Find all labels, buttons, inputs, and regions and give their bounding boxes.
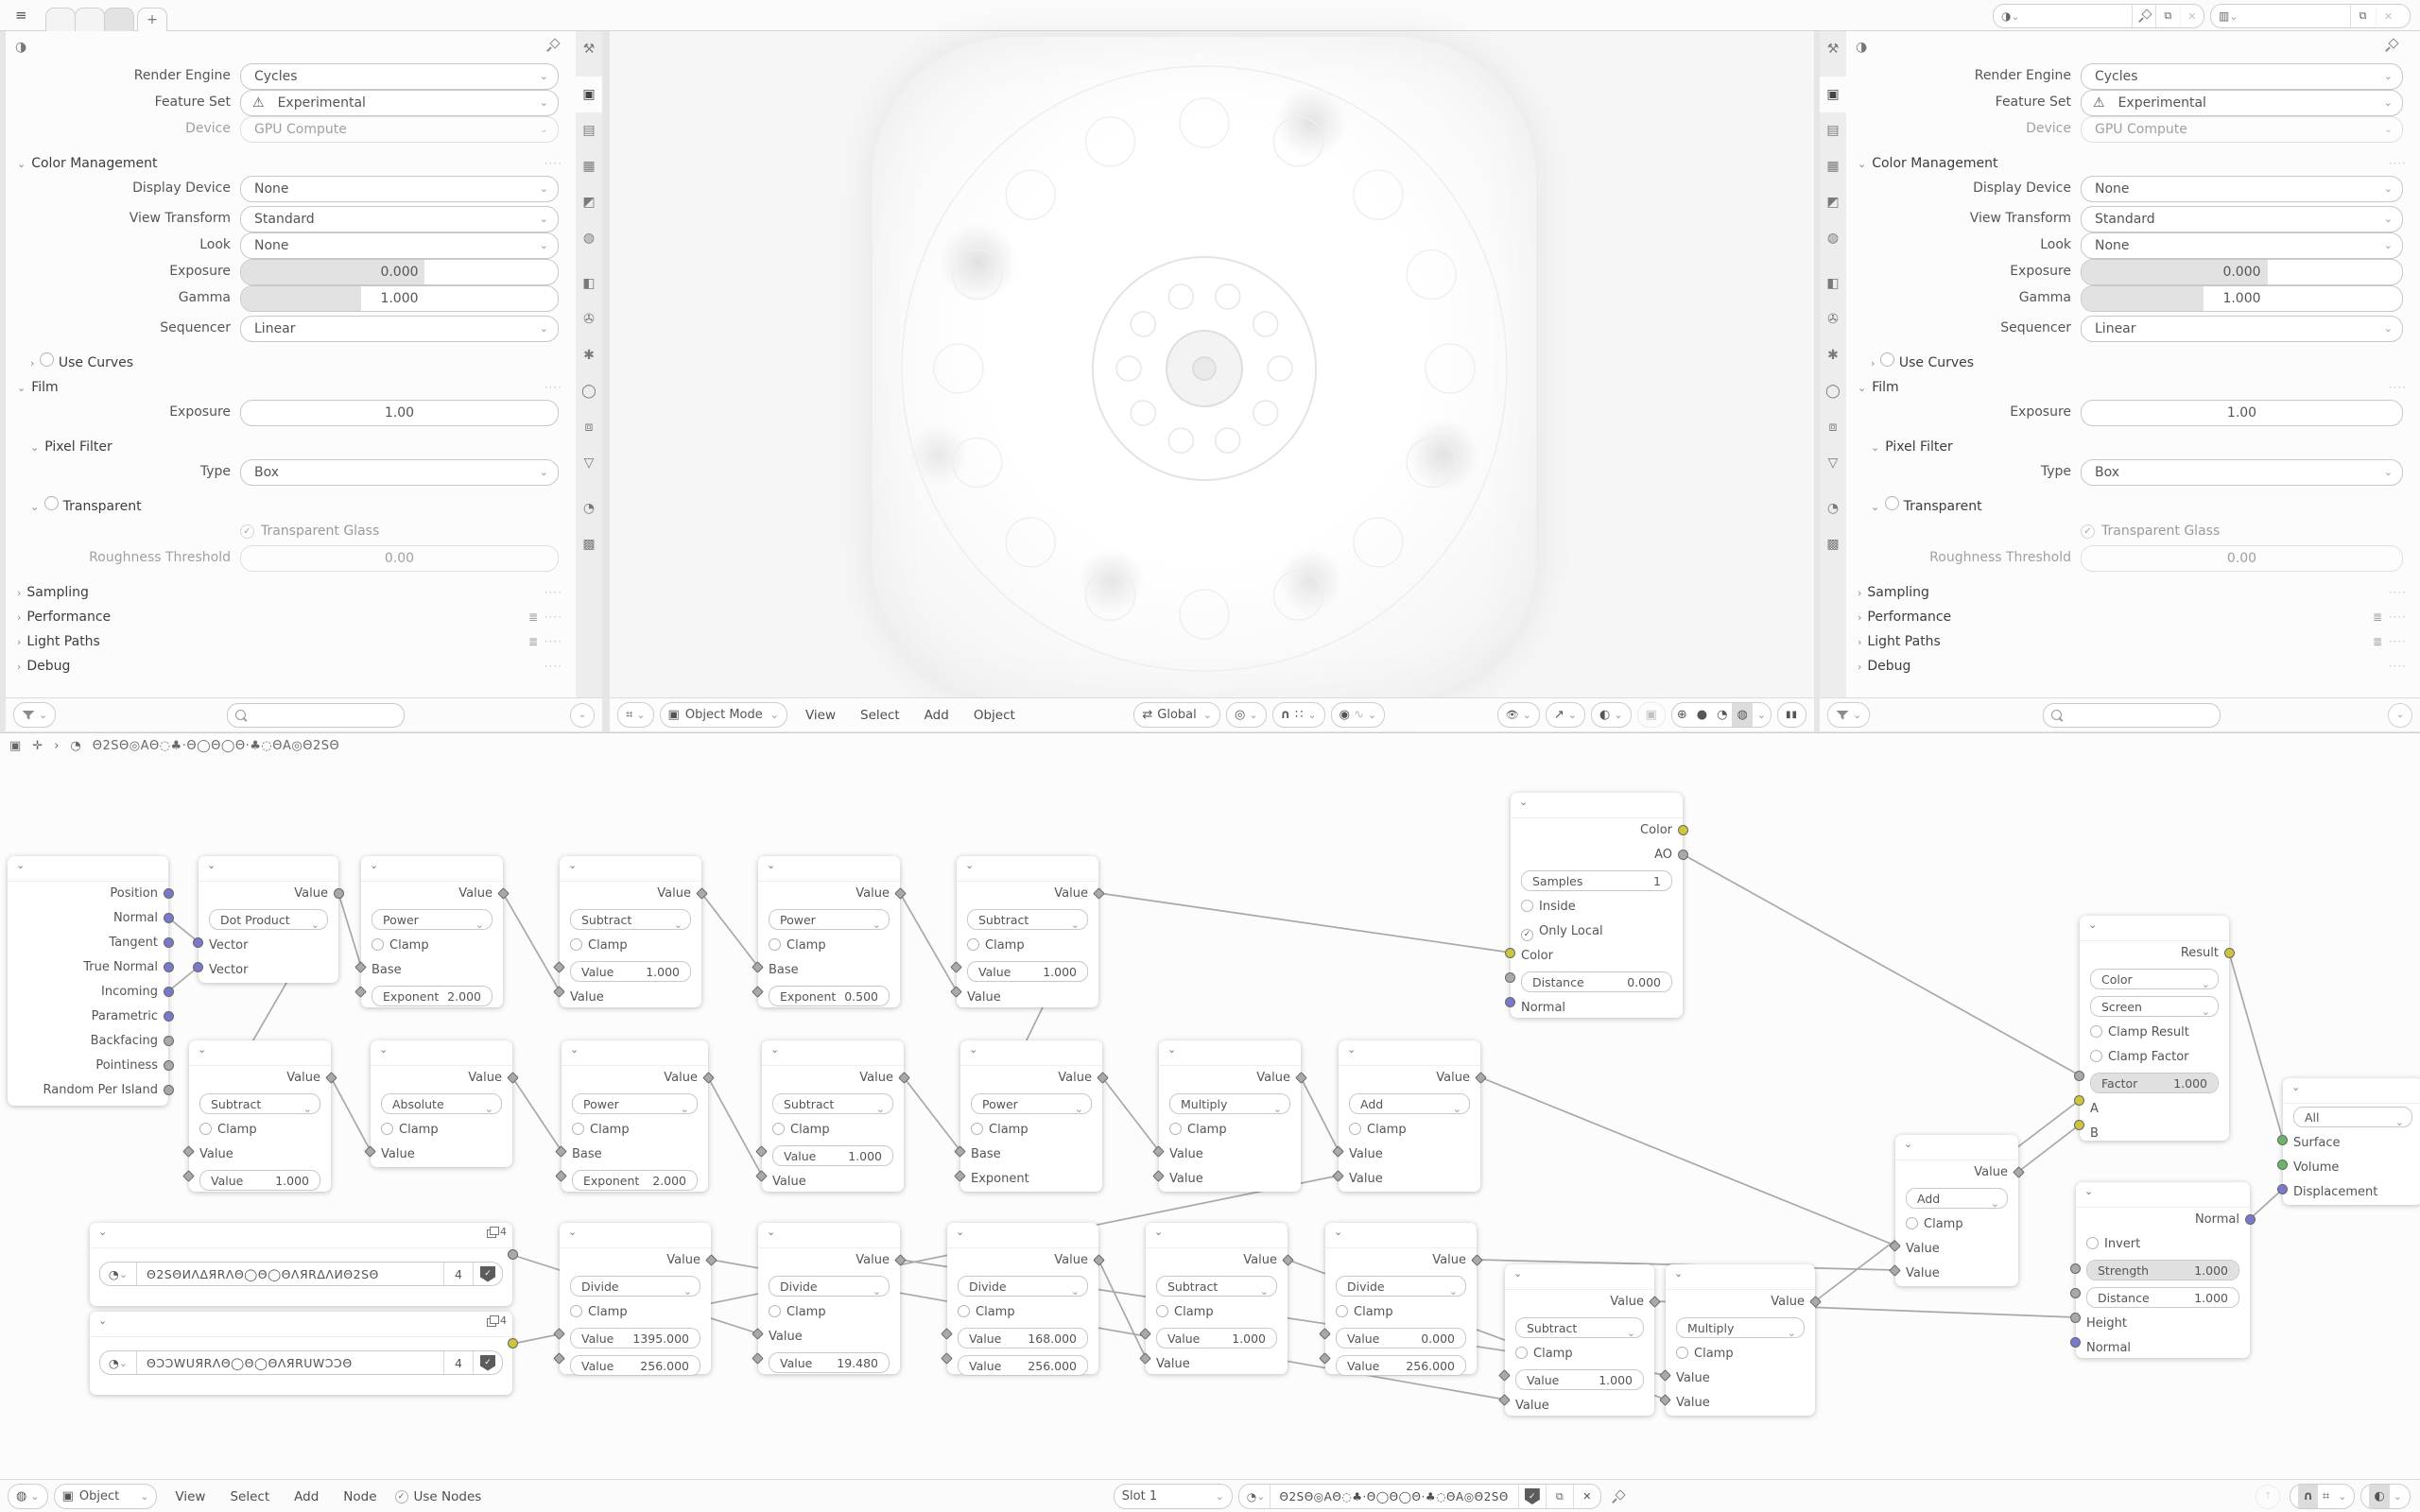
menu-select[interactable]: Select: [217, 1489, 282, 1504]
select-display-device[interactable]: None⌄: [2081, 176, 2403, 202]
options-chevron-button[interactable]: ⌄: [570, 703, 595, 728]
node-div3[interactable]: ⌄ValueDivide⌄ClampValue168.000Value256.0…: [947, 1223, 1098, 1374]
field-exponent[interactable]: Exponent0.500: [769, 986, 890, 1006]
node-row-only-local[interactable]: ✓Only Local: [1511, 919, 1683, 944]
workspace-tab[interactable]: [104, 8, 134, 31]
snap-controls[interactable]: ∩∷⌄: [1272, 702, 1325, 728]
field-exposure[interactable]: 1.00: [240, 400, 559, 426]
field-value[interactable]: Value0.000: [1336, 1328, 1466, 1349]
property-widget-roughness-threshold[interactable]: 0.00: [2081, 545, 2403, 572]
node-header[interactable]: ⌄: [1325, 1223, 1477, 1248]
drag-dots-icon[interactable]: ····: [544, 654, 562, 679]
properties-tab-constraints[interactable]: ⧈: [576, 409, 602, 445]
magnet-icon[interactable]: ∩: [2298, 1485, 2318, 1508]
node-header[interactable]: ⌄: [371, 1040, 512, 1066]
properties-tab-tool[interactable]: ⚒: [576, 31, 602, 67]
node-row-clamp[interactable]: Clamp: [1325, 1300, 1477, 1325]
select-color[interactable]: Color⌄: [2090, 969, 2219, 989]
property-widget-display-device[interactable]: None⌄: [240, 176, 559, 202]
shading-material-preview[interactable]: ◔: [1712, 703, 1732, 727]
properties-tab-object-data[interactable]: ▽: [576, 445, 602, 481]
node-subB[interactable]: ⌄ValueSubtract⌄ClampValue1.000Value: [762, 1040, 904, 1192]
proportional-editing-controls[interactable]: ◉∿⌄: [1331, 702, 1385, 728]
node-header[interactable]: ⌄: [758, 1223, 900, 1248]
field-samples[interactable]: Samples1: [1521, 870, 1672, 891]
property-widget-gamma[interactable]: 1.000: [2081, 285, 2403, 312]
output-socket-pointiness[interactable]: [164, 1060, 174, 1071]
output-socket-parametric[interactable]: [164, 1011, 174, 1022]
node-header[interactable]: ⌄: [960, 1040, 1102, 1066]
field-factor[interactable]: Factor1.000: [2090, 1073, 2219, 1093]
drag-dots-icon[interactable]: ····: [544, 580, 562, 605]
node-row-clamp[interactable]: Clamp: [189, 1118, 331, 1143]
node-header[interactable]: ⌄: [1146, 1223, 1288, 1248]
id-selector-image-field[interactable]: [2242, 4, 2350, 28]
output-socket-backfacing[interactable]: [164, 1036, 174, 1046]
field-distance[interactable]: Distance0.000: [1521, 971, 1672, 992]
select-divide[interactable]: Divide⌄: [1336, 1276, 1466, 1297]
node-row-clamp[interactable]: Clamp: [560, 934, 701, 958]
select-screen[interactable]: Screen⌄: [2090, 996, 2219, 1017]
select-subtract[interactable]: Subtract⌄: [1156, 1276, 1277, 1297]
select-power[interactable]: Power⌄: [971, 1093, 1092, 1114]
node-sub2[interactable]: ⌄ValueSubtract⌄ClampValue1.000Value: [957, 856, 1098, 1007]
material-data-icon[interactable]: ◑ ⌄: [1994, 5, 2024, 27]
section-light-paths[interactable]: ›Light Paths≣····: [1846, 629, 2420, 654]
field-value[interactable]: Value256.000: [570, 1355, 700, 1376]
node-ao[interactable]: ⌄ColorAOSamples1Inside✓Only LocalColorDi…: [1511, 793, 1683, 1018]
search-input[interactable]: [2066, 708, 2212, 723]
section-use-curves[interactable]: › Use Curves: [6, 351, 576, 375]
properties-tab-render[interactable]: ▣: [1820, 77, 1846, 112]
node-header[interactable]: ⌄: [1511, 793, 1683, 818]
node-row-clamp-factor[interactable]: Clamp Factor: [2080, 1045, 2229, 1070]
node-header[interactable]: ⌄: [1895, 1135, 2018, 1160]
node-div2[interactable]: ⌄ValueDivide⌄ClampValueValue19.480: [758, 1223, 900, 1374]
node-header[interactable]: ⌄: [758, 856, 900, 882]
output-socket-ao[interactable]: [1678, 850, 1688, 860]
select-subtract[interactable]: Subtract⌄: [1515, 1317, 1644, 1338]
drag-dots-icon[interactable]: ····: [2389, 151, 2407, 176]
properties-tab-physics[interactable]: ◯: [576, 373, 602, 409]
pause-render-button[interactable]: ▮▮: [1777, 702, 1806, 728]
node-row-clamp[interactable]: Clamp: [1505, 1342, 1654, 1366]
editor-type-dropdown[interactable]: ⌗⌄: [617, 702, 654, 728]
select-type[interactable]: Box⌄: [240, 459, 559, 486]
slider-gamma[interactable]: 1.000: [240, 285, 559, 312]
editor-type-dropdown[interactable]: ◍⌄: [8, 1484, 48, 1509]
property-widget-look[interactable]: None⌄: [240, 232, 559, 259]
node-header[interactable]: ⌄: [947, 1223, 1098, 1248]
select-power[interactable]: Power⌄: [769, 909, 890, 930]
properties-tab-render[interactable]: ▣: [576, 77, 602, 112]
shading-dropdown[interactable]: ⌄: [1753, 703, 1771, 727]
node-header[interactable]: ⌄: [2076, 1182, 2250, 1208]
use-nodes-checkbox[interactable]: ✓Use Nodes: [395, 1489, 482, 1504]
node-row-clamp[interactable]: Clamp: [1895, 1212, 2018, 1237]
output-socket-true-normal[interactable]: [164, 962, 174, 972]
section-transparent[interactable]: ⌄ Transparent: [6, 494, 576, 519]
field-strength[interactable]: Strength1.000: [2086, 1260, 2239, 1280]
fake-user-shield-icon[interactable]: ✓: [473, 1351, 502, 1374]
field-exponent[interactable]: Exponent2.000: [572, 1170, 698, 1191]
select-display-device[interactable]: None⌄: [240, 176, 559, 202]
section-use-curves[interactable]: › Use Curves: [1846, 351, 2420, 375]
image-name[interactable]: Θ2SΘИΛΔЯRΛΘ◯Θ◯ΘΛЯRΔΛИΘ2SΘ: [136, 1263, 443, 1285]
select-absolute[interactable]: Absolute⌄: [381, 1093, 502, 1114]
mode-dropdown[interactable]: ▣Object Mode⌄: [660, 702, 787, 728]
node-header[interactable]: ⌄: [199, 856, 338, 882]
select-subtract[interactable]: Subtract⌄: [772, 1093, 893, 1114]
shader-node-editor[interactable]: ▣✛›◔Θ2SΘ◎AΘ◌♣·Θ◯Θ◯Θ·♣◌ΘA◎Θ2SΘ⌄PositionNo…: [0, 732, 2420, 1512]
node-img2[interactable]: ⌄4◔ ⌄ΘƆƆWUЯRΛΘ◯Θ◯ΘΛЯRUWƆƆΘ4✓: [90, 1312, 512, 1395]
section-sampling[interactable]: ›Sampling····: [1846, 580, 2420, 605]
input-socket-strength[interactable]: [2070, 1263, 2081, 1274]
properties-tab-output[interactable]: ▤: [1820, 112, 1846, 148]
input-socket-normal[interactable]: [1505, 997, 1515, 1007]
select-feature-set[interactable]: ⚠Experimental⌄: [2081, 90, 2403, 116]
properties-tab-view-layer[interactable]: ▦: [1820, 148, 1846, 184]
output-socket-position[interactable]: [164, 888, 174, 899]
shading-solid[interactable]: ●: [1692, 703, 1712, 727]
section-checkbox[interactable]: [44, 496, 59, 510]
section-light-paths[interactable]: ›Light Paths≣····: [6, 629, 576, 654]
shading-rendered[interactable]: ◍: [1732, 703, 1752, 727]
filter-dropdown[interactable]: ⌄: [13, 702, 56, 728]
properties-tab-modifiers[interactable]: ✇: [576, 301, 602, 337]
node-header[interactable]: ⌄: [361, 856, 503, 882]
properties-tab-material[interactable]: ◔: [576, 490, 602, 526]
select-subtract[interactable]: Subtract⌄: [570, 909, 691, 930]
input-socket-color[interactable]: [1505, 948, 1515, 958]
copy-icon[interactable]: ⧉: [2155, 5, 2179, 27]
node-sub4[interactable]: ⌄ValueSubtract⌄ClampValue1.000Value: [1505, 1264, 1654, 1416]
section-checkbox[interactable]: [40, 352, 54, 367]
node-mulA[interactable]: ⌄ValueMultiply⌄ClampValueValue: [1159, 1040, 1301, 1192]
snap-controls[interactable]: ∩⌗⌄: [2290, 1484, 2355, 1509]
node-div1[interactable]: ⌄ValueDivide⌄ClampValue1395.000Value256.…: [560, 1223, 711, 1374]
shading-wireframe[interactable]: ⊕: [1672, 703, 1692, 727]
properties-tab-physics[interactable]: ◯: [1820, 373, 1846, 409]
pin-icon[interactable]: [1611, 1490, 1624, 1503]
section-checkbox[interactable]: [1880, 352, 1894, 367]
property-widget-exposure[interactable]: 0.000: [2081, 259, 2403, 285]
property-widget-feature-set[interactable]: ⚠Experimental⌄: [2081, 90, 2403, 116]
properties-tab-view-layer[interactable]: ▦: [576, 148, 602, 184]
menu-view[interactable]: View: [163, 1489, 217, 1504]
checkbox-transparent-glass[interactable]: ✓Transparent Glass: [240, 519, 559, 543]
input-socket-displacement[interactable]: [2277, 1184, 2288, 1194]
select-multiply[interactable]: Multiply⌄: [1676, 1317, 1805, 1338]
list-icon[interactable]: ≣: [528, 629, 538, 654]
output-socket[interactable]: [508, 1249, 518, 1260]
node-mul4[interactable]: ⌄ValueMultiply⌄ClampValueValue: [1666, 1264, 1815, 1416]
output-socket-normal[interactable]: [164, 913, 174, 923]
node-row-clamp[interactable]: Clamp: [361, 934, 503, 958]
input-socket-vector[interactable]: [193, 962, 203, 972]
property-widget-view-transform[interactable]: Standard⌄: [240, 206, 559, 232]
id-selector-material-field[interactable]: [2024, 4, 2132, 28]
properties-tab-material[interactable]: ◔: [1820, 490, 1846, 526]
node-row-clamp[interactable]: Clamp: [562, 1118, 708, 1143]
node-subA[interactable]: ⌄ValueSubtract⌄ClampValueValue1.000: [189, 1040, 331, 1192]
node-header[interactable]: ⌄: [2283, 1078, 2420, 1104]
close-icon[interactable]: ✕: [1573, 1485, 1600, 1508]
select-type[interactable]: Box⌄: [2081, 459, 2403, 486]
shader-type-dropdown[interactable]: ▣Object⌄: [54, 1484, 158, 1509]
select-view-transform[interactable]: Standard⌄: [2081, 206, 2403, 232]
section-film[interactable]: ⌄Film····: [6, 375, 576, 400]
property-widget-type[interactable]: Box⌄: [2081, 459, 2403, 486]
section-debug[interactable]: ›Debug····: [6, 654, 576, 679]
node-addB[interactable]: ⌄ValueAdd⌄ClampValueValue: [1895, 1135, 2018, 1286]
input-socket-surface[interactable]: [2277, 1135, 2288, 1145]
select-divide[interactable]: Divide⌄: [769, 1276, 890, 1297]
node-row-clamp[interactable]: Clamp: [1159, 1118, 1301, 1143]
node-out[interactable]: ⌄All⌄SurfaceVolumeDisplacement: [2283, 1078, 2420, 1205]
properties-tab-constraints[interactable]: ⧈: [1820, 409, 1846, 445]
node-abs[interactable]: ⌄ValueAbsolute⌄ClampValue: [371, 1040, 512, 1167]
select-look[interactable]: None⌄: [2081, 232, 2403, 259]
property-widget-view-transform[interactable]: Standard⌄: [2081, 206, 2403, 232]
node-dot[interactable]: ⌄ValueDot Product⌄VectorVector: [199, 856, 338, 983]
section-color-management[interactable]: ⌄Color Management····: [1846, 151, 2420, 176]
node-img1[interactable]: ⌄4◔ ⌄Θ2SΘИΛΔЯRΛΘ◯Θ◯ΘΛЯRΔΛИΘ2SΘ4✓: [90, 1223, 512, 1306]
properties-tab-output[interactable]: ▤: [576, 112, 602, 148]
section-transparent[interactable]: ⌄ Transparent: [1846, 494, 2420, 519]
viewport-3d[interactable]: ⌗⌄▣Object Mode⌄ViewSelectAddObject⇄Globa…: [610, 31, 1814, 731]
drag-dots-icon[interactable]: ····: [544, 375, 562, 400]
node-header[interactable]: ⌄4: [90, 1312, 512, 1337]
node-row-clamp-result[interactable]: Clamp Result: [2080, 1021, 2229, 1045]
checkbox-transparent-glass[interactable]: ✓Transparent Glass: [2081, 519, 2403, 543]
property-widget-exposure[interactable]: 1.00: [240, 400, 559, 426]
node-powB[interactable]: ⌄ValuePower⌄ClampBaseExponent: [960, 1040, 1102, 1192]
node-row-clamp[interactable]: Clamp: [957, 934, 1098, 958]
node-header[interactable]: ⌄: [8, 856, 168, 882]
visibility-dropdown[interactable]: 👁⌄: [1497, 702, 1540, 728]
fake-user-shield-icon[interactable]: ✓: [473, 1263, 502, 1285]
select-power[interactable]: Power⌄: [572, 1093, 698, 1114]
select-sequencer[interactable]: Linear⌄: [2081, 316, 2403, 342]
snap-grid-icon[interactable]: ⌗: [2318, 1485, 2335, 1508]
select-device[interactable]: GPU Compute⌄: [2081, 116, 2403, 143]
properties-tab-scene[interactable]: ◩: [576, 184, 602, 220]
property-widget-type[interactable]: Box⌄: [240, 459, 559, 486]
property-widget-exposure[interactable]: 1.00: [2081, 400, 2403, 426]
select-divide[interactable]: Divide⌄: [570, 1276, 700, 1297]
slot-dropdown[interactable]: Slot 1⌄: [1114, 1484, 1233, 1509]
properties-tab-world[interactable]: ◍: [1820, 220, 1846, 256]
material-name[interactable]: Θ2SΘ◎AΘ◌♣·Θ◯Θ◯Θ·♣◌ΘA◎Θ2SΘ: [1270, 1485, 1518, 1508]
properties-tab-texture[interactable]: ▩: [576, 526, 602, 562]
select-add[interactable]: Add⌄: [1906, 1188, 2008, 1209]
node-mix[interactable]: ⌄ResultColor⌄Screen⌄Clamp ResultClamp Fa…: [2080, 916, 2229, 1141]
input-socket-b[interactable]: [2074, 1120, 2084, 1130]
output-socket-tangent[interactable]: [164, 937, 174, 948]
add-workspace-button[interactable]: +: [137, 8, 167, 31]
filter-dropdown[interactable]: ⌄: [1827, 702, 1870, 728]
property-widget-render-engine[interactable]: Cycles⌄: [240, 63, 559, 90]
drag-dots-icon[interactable]: ····: [544, 629, 562, 654]
drag-dots-icon[interactable]: ····: [544, 151, 562, 176]
pivot-dropdown[interactable]: ◎⌄: [1226, 702, 1267, 728]
node-row-clamp[interactable]: Clamp: [758, 934, 900, 958]
node-powA[interactable]: ⌄ValuePower⌄ClampBaseExponent2.000: [562, 1040, 708, 1192]
property-widget-feature-set[interactable]: ⚠Experimental⌄: [240, 90, 559, 116]
node-row-clamp[interactable]: Clamp: [762, 1118, 904, 1143]
node-row-clamp[interactable]: Clamp: [947, 1300, 1098, 1325]
section-checkbox[interactable]: [1885, 496, 1899, 510]
node-header[interactable]: ⌄: [1339, 1040, 1480, 1066]
property-widget-display-device[interactable]: None⌄: [2081, 176, 2403, 202]
workspace-tab[interactable]: [45, 8, 76, 31]
close-icon[interactable]: ✕: [2376, 5, 2401, 27]
box-select-icon[interactable]: ▣: [9, 739, 21, 753]
field-roughness-threshold[interactable]: 0.00: [2081, 545, 2403, 572]
drag-dots-icon[interactable]: ····: [544, 605, 562, 629]
image-icon-dropdown[interactable]: ◔ ⌄: [100, 1351, 136, 1374]
field-value[interactable]: Value1.000: [967, 961, 1088, 982]
section-performance[interactable]: ›Performance≣····: [1846, 605, 2420, 629]
node-row-clamp[interactable]: Clamp: [1666, 1342, 1815, 1366]
node-sub3[interactable]: ⌄ValueSubtract⌄ClampValue1.000Value: [1146, 1223, 1288, 1374]
node-header[interactable]: ⌄4: [90, 1223, 512, 1248]
output-socket-normal[interactable]: [2245, 1214, 2256, 1225]
node-row-clamp[interactable]: Clamp: [371, 1118, 512, 1143]
field-value[interactable]: Value256.000: [1336, 1355, 1466, 1376]
section-film[interactable]: ⌄Film····: [1846, 375, 2420, 400]
node-geo[interactable]: ⌄PositionNormalTangentTrue NormalIncomin…: [8, 856, 168, 1106]
pin-icon[interactable]: [545, 39, 559, 52]
section-debug[interactable]: ›Debug····: [1846, 654, 2420, 679]
field-value[interactable]: Value168.000: [958, 1328, 1088, 1349]
input-socket-volume[interactable]: [2277, 1160, 2288, 1170]
select-add[interactable]: Add⌄: [1349, 1093, 1470, 1114]
image-icon-dropdown[interactable]: ◔ ⌄: [100, 1263, 136, 1285]
transform-orientation-dropdown[interactable]: ⇄Global⌄: [1133, 702, 1220, 728]
image-user-count[interactable]: 4: [443, 1263, 473, 1285]
pin-icon[interactable]: [2384, 39, 2397, 52]
xray-toggle[interactable]: ▣: [1637, 702, 1666, 728]
section-sampling[interactable]: ›Sampling····: [6, 580, 576, 605]
node-sub1[interactable]: ⌄ValueSubtract⌄ClampValue1.000Value: [560, 856, 701, 1007]
node-addA[interactable]: ⌄ValueAdd⌄ClampValueValue: [1339, 1040, 1480, 1192]
node-row-clamp[interactable]: Clamp: [560, 1300, 711, 1325]
image-name[interactable]: ΘƆƆWUЯRΛΘ◯Θ◯ΘΛЯRUWƆƆΘ: [136, 1351, 443, 1374]
image-user-count[interactable]: 4: [443, 1351, 473, 1374]
list-icon[interactable]: ≣: [2373, 605, 2382, 629]
node-header[interactable]: ⌄: [560, 856, 701, 882]
field-value[interactable]: Value1.000: [1156, 1328, 1277, 1349]
node-header[interactable]: ⌄: [562, 1040, 708, 1066]
properties-tab-modifiers[interactable]: ✇: [1820, 301, 1846, 337]
menu-node[interactable]: Node: [331, 1489, 389, 1504]
fake-user-shield-icon[interactable]: ✓: [1518, 1485, 1546, 1508]
list-icon[interactable]: ≣: [528, 605, 538, 629]
workspace-tab[interactable]: [75, 8, 105, 31]
select-sequencer[interactable]: Linear⌄: [240, 316, 559, 342]
properties-tab-object[interactable]: ◧: [576, 266, 602, 301]
field-value[interactable]: Value1.000: [570, 961, 691, 982]
property-widget-render-engine[interactable]: Cycles⌄: [2081, 63, 2403, 90]
select-power[interactable]: Power⌄: [372, 909, 493, 930]
select-dot-product[interactable]: Dot Product⌄: [209, 909, 328, 930]
drag-dots-icon[interactable]: ····: [2389, 605, 2407, 629]
select-divide[interactable]: Divide⌄: [958, 1276, 1088, 1297]
field-value[interactable]: Value1.000: [199, 1170, 320, 1191]
menu-add[interactable]: Add: [912, 708, 961, 723]
menu-view[interactable]: View: [793, 708, 848, 723]
menu-select[interactable]: Select: [848, 708, 912, 723]
section-color-management[interactable]: ⌄Color Management····: [6, 151, 576, 176]
field-distance[interactable]: Distance1.000: [2086, 1287, 2239, 1308]
node-header[interactable]: ⌄: [1505, 1264, 1654, 1290]
copy-icon[interactable]: ⧉: [2350, 5, 2376, 27]
field-value[interactable]: Value19.480: [769, 1352, 890, 1373]
properties-tab-world[interactable]: ◍: [576, 220, 602, 256]
field-exponent[interactable]: Exponent2.000: [372, 986, 493, 1006]
properties-tab-scene[interactable]: ◩: [1820, 184, 1846, 220]
select-view-transform[interactable]: Standard⌄: [240, 206, 559, 232]
parent-node-tree-button[interactable]: ↑: [2256, 1485, 2280, 1509]
slider-gamma[interactable]: 1.000: [2081, 285, 2403, 312]
drag-dots-icon[interactable]: ····: [2389, 375, 2407, 400]
property-widget-gamma[interactable]: 1.000: [240, 285, 559, 312]
close-icon[interactable]: ✕: [2180, 5, 2204, 27]
input-socket-distance[interactable]: [1505, 972, 1515, 983]
select-feature-set[interactable]: ⚠Experimental⌄: [240, 90, 559, 116]
select-subtract[interactable]: Subtract⌄: [967, 909, 1088, 930]
field-value[interactable]: Value256.000: [958, 1355, 1088, 1376]
gizmo-dropdown[interactable]: ↗⌄: [1546, 702, 1585, 728]
field-exposure[interactable]: 1.00: [2081, 400, 2403, 426]
node-header[interactable]: ⌄: [189, 1040, 331, 1066]
app-menu-icon[interactable]: ≡: [15, 7, 27, 24]
properties-tab-object[interactable]: ◧: [1820, 266, 1846, 301]
select-device[interactable]: GPU Compute⌄: [240, 116, 559, 143]
input-socket-vector[interactable]: [193, 937, 203, 948]
node-row-invert[interactable]: Invert: [2076, 1232, 2250, 1257]
section-performance[interactable]: ›Performance≣····: [6, 605, 576, 629]
move-icon[interactable]: ✛: [32, 739, 43, 753]
field-value[interactable]: Value1.000: [1515, 1369, 1644, 1390]
select-look[interactable]: None⌄: [240, 232, 559, 259]
property-widget-sequencer[interactable]: Linear⌄: [2081, 316, 2403, 342]
overlays-dropdown[interactable]: ◐⌄: [1591, 702, 1632, 728]
select-all[interactable]: All⌄: [2293, 1107, 2412, 1127]
node-row-clamp[interactable]: Clamp: [1146, 1300, 1288, 1325]
field-roughness-threshold[interactable]: 0.00: [240, 545, 559, 572]
node-bump[interactable]: ⌄NormalInvertStrength1.000Distance1.000H…: [2076, 1182, 2250, 1358]
select-render-engine[interactable]: Cycles⌄: [240, 63, 559, 90]
node-header[interactable]: ⌄: [762, 1040, 904, 1066]
drag-dots-icon[interactable]: ····: [2389, 629, 2407, 654]
properties-tab-tool[interactable]: ⚒: [1820, 31, 1846, 67]
menu-add[interactable]: Add: [282, 1489, 331, 1504]
list-icon[interactable]: ≣: [2373, 629, 2382, 654]
field-value[interactable]: Value1395.000: [570, 1328, 700, 1349]
output-socket[interactable]: [508, 1338, 518, 1349]
output-socket-incoming[interactable]: [164, 987, 174, 997]
node-header[interactable]: ⌄: [2080, 916, 2229, 941]
property-widget-device[interactable]: GPU Compute⌄: [240, 116, 559, 143]
properties-tab-object-data[interactable]: ▽: [1820, 445, 1846, 481]
output-socket-result[interactable]: [2224, 948, 2235, 958]
node-pow1[interactable]: ⌄ValuePower⌄ClampBaseExponent2.000: [361, 856, 503, 1007]
field-value[interactable]: Value1.000: [772, 1145, 893, 1166]
material-sphere-icon[interactable]: ◔ ⌄: [1239, 1485, 1270, 1508]
